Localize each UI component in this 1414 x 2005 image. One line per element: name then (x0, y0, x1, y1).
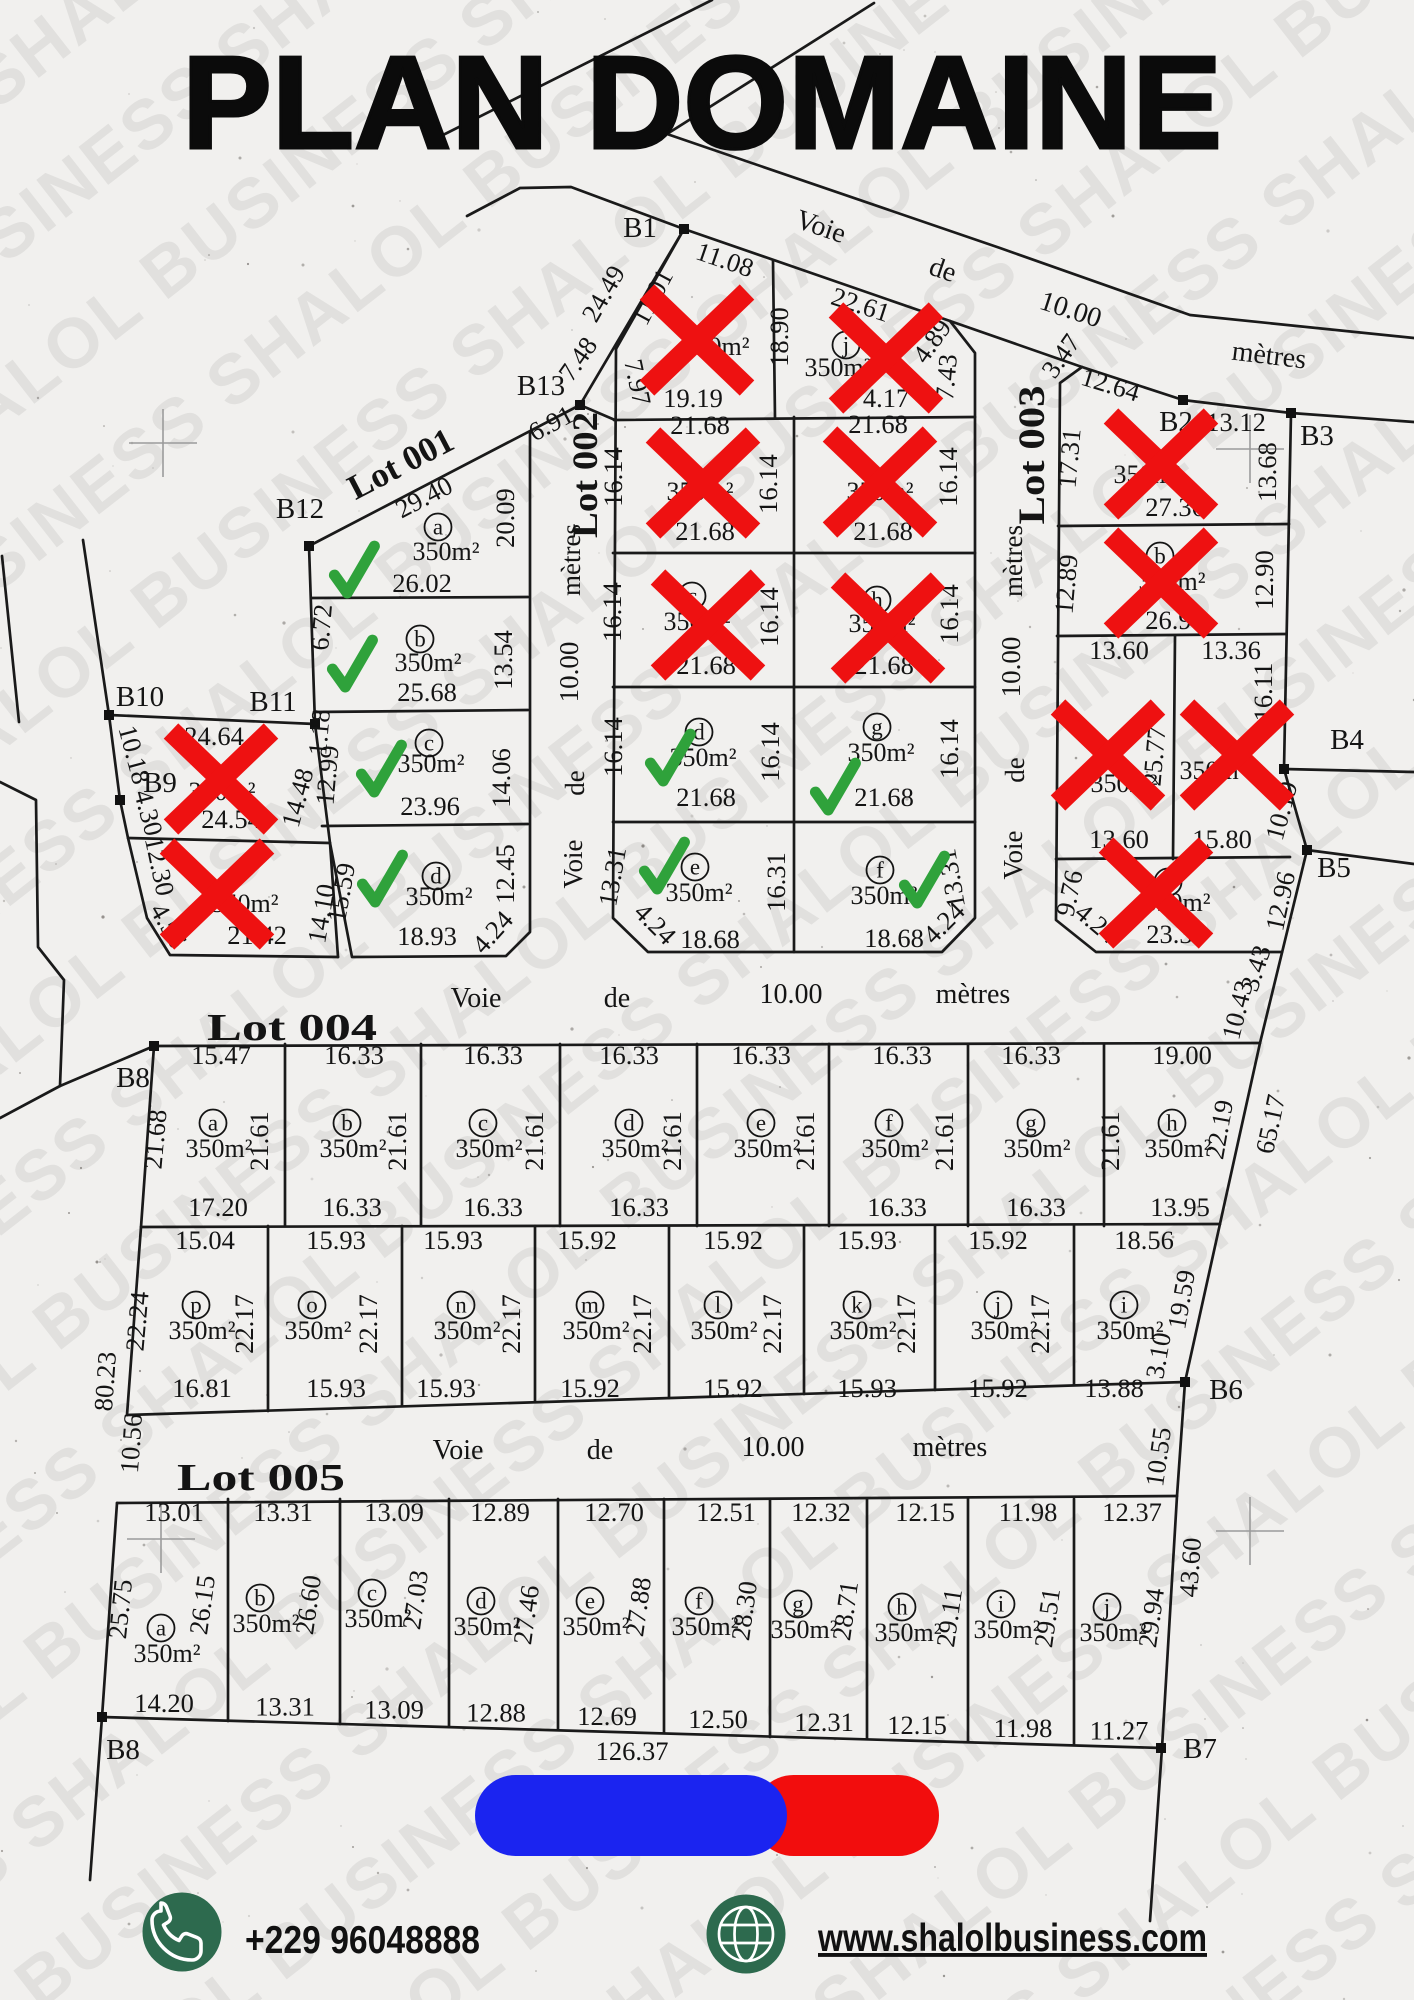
svg-text:h: h (1166, 1111, 1178, 1136)
svg-text:12.89: 12.89 (470, 1497, 530, 1527)
svg-text:16.14: 16.14 (598, 447, 628, 507)
svg-text:21.68: 21.68 (854, 782, 914, 812)
svg-text:350m²: 350m² (455, 1134, 522, 1163)
svg-text:21.61: 21.61 (519, 1111, 549, 1171)
svg-text:14.06: 14.06 (486, 748, 516, 808)
svg-text:15.93: 15.93 (306, 1225, 366, 1255)
svg-text:10.56: 10.56 (114, 1413, 148, 1475)
svg-text:f: f (695, 1589, 703, 1614)
svg-text:15.93: 15.93 (423, 1225, 483, 1255)
svg-text:12.89: 12.89 (1048, 553, 1083, 615)
svg-text:12.31: 12.31 (794, 1707, 854, 1737)
svg-text:16.33: 16.33 (1006, 1192, 1066, 1222)
svg-text:16.33: 16.33 (324, 1040, 384, 1070)
svg-text:15.92: 15.92 (703, 1373, 763, 1403)
svg-text:i: i (1121, 1293, 1127, 1318)
svg-text:15.93: 15.93 (416, 1373, 476, 1403)
svg-text:13.09: 13.09 (364, 1497, 424, 1527)
svg-text:13.54: 13.54 (488, 630, 518, 690)
svg-text:23.96: 23.96 (400, 791, 460, 821)
svg-text:B5: B5 (1317, 852, 1351, 884)
svg-text:11.98: 11.98 (994, 1713, 1053, 1743)
svg-text:a: a (433, 515, 443, 540)
svg-text:Lot 005: Lot 005 (177, 1457, 345, 1499)
svg-text:350m²: 350m² (1003, 1134, 1070, 1163)
svg-text:h: h (896, 1595, 908, 1620)
svg-text:mètres: mètres (913, 1432, 988, 1463)
svg-text:21.61: 21.61 (1095, 1111, 1125, 1171)
svg-text:12.32: 12.32 (791, 1497, 851, 1527)
svg-text:10.00: 10.00 (742, 1432, 805, 1463)
svg-text:e: e (756, 1111, 766, 1136)
svg-text:10.00: 10.00 (996, 637, 1026, 698)
svg-text:B3: B3 (1300, 420, 1334, 452)
svg-text:de: de (560, 770, 590, 796)
svg-text:d: d (623, 1111, 635, 1136)
svg-text:de: de (1000, 757, 1030, 783)
svg-text:16.14: 16.14 (933, 447, 963, 507)
svg-text:18.68: 18.68 (864, 923, 924, 953)
svg-text:18.68: 18.68 (680, 924, 740, 954)
svg-text:c: c (367, 1581, 377, 1606)
svg-text:18.93: 18.93 (397, 921, 457, 951)
svg-text:+229 96048888: +229 96048888 (245, 1919, 480, 1962)
svg-text:15.92: 15.92 (557, 1225, 617, 1255)
svg-text:20.09: 20.09 (490, 488, 520, 548)
svg-text:16.33: 16.33 (463, 1192, 523, 1222)
svg-text:Lot 003: Lot 003 (1012, 386, 1053, 525)
svg-text:26.02: 26.02 (392, 568, 452, 598)
svg-text:16.31: 16.31 (761, 852, 791, 912)
svg-text:22.17: 22.17 (891, 1294, 921, 1354)
svg-text:17.31: 17.31 (1051, 427, 1086, 489)
svg-text:mètres: mètres (936, 979, 1011, 1010)
svg-text:22.17: 22.17 (757, 1294, 787, 1354)
svg-text:16.33: 16.33 (322, 1192, 382, 1222)
svg-text:16.33: 16.33 (599, 1040, 659, 1070)
svg-text:b: b (254, 1586, 266, 1611)
svg-text:19.00: 19.00 (1152, 1040, 1212, 1070)
svg-text:13.09: 13.09 (364, 1695, 424, 1725)
svg-text:12.99: 12.99 (309, 744, 344, 806)
svg-text:350m²: 350m² (433, 1316, 500, 1345)
svg-text:13.95: 13.95 (1150, 1192, 1210, 1222)
svg-text:i: i (998, 1592, 1004, 1617)
svg-text:14.20: 14.20 (134, 1688, 194, 1718)
svg-text:B6: B6 (1209, 1374, 1243, 1406)
svg-text:B8: B8 (106, 1734, 140, 1766)
svg-text:21.61: 21.61 (657, 1111, 687, 1171)
svg-text:350m²: 350m² (319, 1134, 386, 1163)
svg-text:350m²: 350m² (829, 1316, 896, 1345)
svg-text:19.19: 19.19 (663, 383, 723, 413)
svg-text:B1: B1 (623, 212, 657, 244)
svg-text:13.88: 13.88 (1084, 1373, 1144, 1403)
svg-text:17.20: 17.20 (188, 1192, 248, 1222)
svg-text:16.33: 16.33 (463, 1040, 523, 1070)
svg-text:350m²: 350m² (690, 1316, 757, 1345)
svg-text:16.14: 16.14 (754, 587, 784, 647)
svg-text:350m²: 350m² (405, 882, 472, 911)
svg-text:a: a (156, 1616, 166, 1641)
svg-text:350m²: 350m² (412, 537, 479, 566)
svg-text:j: j (994, 1293, 1001, 1318)
svg-text:k: k (851, 1293, 863, 1318)
svg-text:12.90: 12.90 (1249, 550, 1279, 610)
svg-text:126.37: 126.37 (596, 1736, 669, 1766)
svg-text:21.61: 21.61 (929, 1111, 959, 1171)
svg-text:16.33: 16.33 (609, 1192, 669, 1222)
svg-text:15.92: 15.92 (703, 1225, 763, 1255)
svg-text:de: de (604, 983, 630, 1014)
svg-text:B13: B13 (517, 370, 565, 402)
svg-text:B11: B11 (249, 686, 296, 718)
svg-text:350m²: 350m² (861, 1134, 928, 1163)
svg-text:m: m (581, 1293, 599, 1318)
svg-text:350m²: 350m² (397, 749, 464, 778)
svg-text:mètres: mètres (998, 525, 1028, 597)
svg-text:12.37: 12.37 (1102, 1497, 1162, 1527)
svg-text:p: p (190, 1293, 202, 1318)
svg-text:12.45: 12.45 (490, 844, 520, 904)
svg-text:12.88: 12.88 (466, 1698, 526, 1728)
svg-text:16.33: 16.33 (1001, 1040, 1061, 1070)
svg-text:15.92: 15.92 (560, 1373, 620, 1403)
svg-text:15.04: 15.04 (175, 1225, 235, 1255)
svg-text:21.68: 21.68 (676, 782, 736, 812)
svg-text:350m²: 350m² (665, 878, 732, 907)
svg-text:21.68: 21.68 (853, 516, 913, 546)
svg-text:b: b (341, 1111, 353, 1136)
svg-text:16.14: 16.14 (755, 722, 785, 782)
svg-text:13.60: 13.60 (1089, 635, 1149, 665)
svg-text:22.24: 22.24 (119, 1290, 154, 1352)
svg-text:g: g (792, 1592, 804, 1617)
svg-text:15.93: 15.93 (837, 1225, 897, 1255)
svg-text:13.68: 13.68 (1252, 442, 1282, 502)
svg-text:25.68: 25.68 (397, 677, 457, 707)
svg-text:16.14: 16.14 (934, 719, 964, 779)
svg-text:de: de (587, 1435, 613, 1466)
svg-text:e: e (690, 855, 700, 880)
svg-text:n: n (455, 1293, 467, 1318)
svg-text:21.68: 21.68 (675, 516, 735, 546)
svg-text:16.33: 16.33 (731, 1040, 791, 1070)
svg-text:15.47: 15.47 (191, 1040, 251, 1070)
svg-text:15.93: 15.93 (837, 1373, 897, 1403)
svg-text:21.68: 21.68 (848, 409, 908, 439)
svg-text:13.31: 13.31 (253, 1497, 313, 1527)
svg-text:10.00: 10.00 (760, 979, 823, 1010)
svg-text:B7: B7 (1183, 1733, 1217, 1765)
svg-text:16.81: 16.81 (172, 1373, 232, 1403)
svg-text:16.33: 16.33 (867, 1192, 927, 1222)
svg-text:25.75: 25.75 (102, 1578, 138, 1640)
svg-text:12.69: 12.69 (577, 1701, 637, 1731)
svg-text:Voie: Voie (998, 830, 1028, 879)
svg-text:Voie: Voie (558, 839, 588, 888)
svg-text:6.72: 6.72 (304, 603, 338, 652)
svg-text:B4: B4 (1330, 724, 1364, 756)
svg-text:12.15: 12.15 (895, 1497, 955, 1527)
svg-text:12.15: 12.15 (887, 1710, 947, 1740)
svg-text:c: c (478, 1111, 488, 1136)
svg-text:16.14: 16.14 (598, 717, 628, 777)
svg-text:Voie: Voie (451, 983, 502, 1014)
svg-text:PLAN DOMAINE: PLAN DOMAINE (182, 29, 1222, 176)
svg-text:18.90: 18.90 (764, 307, 794, 367)
svg-text:10.00: 10.00 (554, 642, 584, 703)
svg-text:350m²: 350m² (133, 1639, 200, 1668)
svg-text:21.61: 21.61 (790, 1111, 820, 1171)
svg-text:Voie: Voie (433, 1435, 484, 1466)
svg-text:21.68: 21.68 (670, 410, 730, 440)
svg-text:11.27: 11.27 (1090, 1716, 1149, 1746)
svg-text:22.17: 22.17 (496, 1294, 526, 1354)
svg-text:15.93: 15.93 (306, 1373, 366, 1403)
svg-text:e: e (585, 1589, 595, 1614)
svg-text:11.98: 11.98 (999, 1497, 1058, 1527)
svg-text:f: f (885, 1111, 893, 1136)
svg-text:16.14: 16.14 (753, 454, 783, 514)
svg-text:43.60: 43.60 (1173, 1537, 1207, 1599)
svg-text:B8: B8 (116, 1062, 150, 1094)
svg-text:13.31: 13.31 (255, 1691, 315, 1721)
svg-text:B12: B12 (276, 493, 324, 525)
svg-text:12.70: 12.70 (584, 1497, 644, 1527)
svg-text:15.92: 15.92 (968, 1225, 1028, 1255)
svg-text:18.56: 18.56 (1114, 1225, 1174, 1255)
svg-text:12.50: 12.50 (688, 1704, 748, 1734)
svg-text:22.17: 22.17 (353, 1294, 383, 1354)
svg-text:16.33: 16.33 (872, 1040, 932, 1070)
svg-text:g: g (871, 715, 883, 740)
svg-text:350m²: 350m² (284, 1316, 351, 1345)
svg-text:350m²: 350m² (394, 648, 461, 677)
svg-text:d: d (475, 1589, 487, 1614)
svg-text:j: j (1103, 1595, 1110, 1620)
svg-text:15.92: 15.92 (968, 1373, 1028, 1403)
svg-text:l: l (715, 1293, 721, 1318)
svg-text:22.17: 22.17 (1025, 1294, 1055, 1354)
svg-text:a: a (208, 1111, 218, 1136)
svg-text:12.51: 12.51 (696, 1497, 756, 1527)
svg-text:80.23: 80.23 (88, 1351, 122, 1413)
svg-text:21.61: 21.61 (382, 1111, 412, 1171)
svg-text:B10: B10 (116, 681, 164, 713)
svg-text:13.01: 13.01 (144, 1497, 204, 1527)
svg-text:350m²: 350m² (185, 1134, 252, 1163)
svg-text:350m²: 350m² (168, 1316, 235, 1345)
svg-text:21.61: 21.61 (244, 1111, 274, 1171)
svg-text:16.14: 16.14 (597, 582, 627, 642)
svg-text:21.68: 21.68 (137, 1108, 172, 1170)
svg-text:g: g (1025, 1111, 1037, 1136)
svg-text:f: f (876, 858, 884, 883)
svg-text:22.17: 22.17 (229, 1294, 259, 1354)
svg-text:o: o (306, 1293, 318, 1318)
svg-text:350m²: 350m² (562, 1316, 629, 1345)
svg-text:www.shalolbusiness.com: www.shalolbusiness.com (817, 1917, 1207, 1960)
svg-text:13.36: 13.36 (1201, 635, 1261, 665)
svg-text:22.17: 22.17 (627, 1294, 657, 1354)
